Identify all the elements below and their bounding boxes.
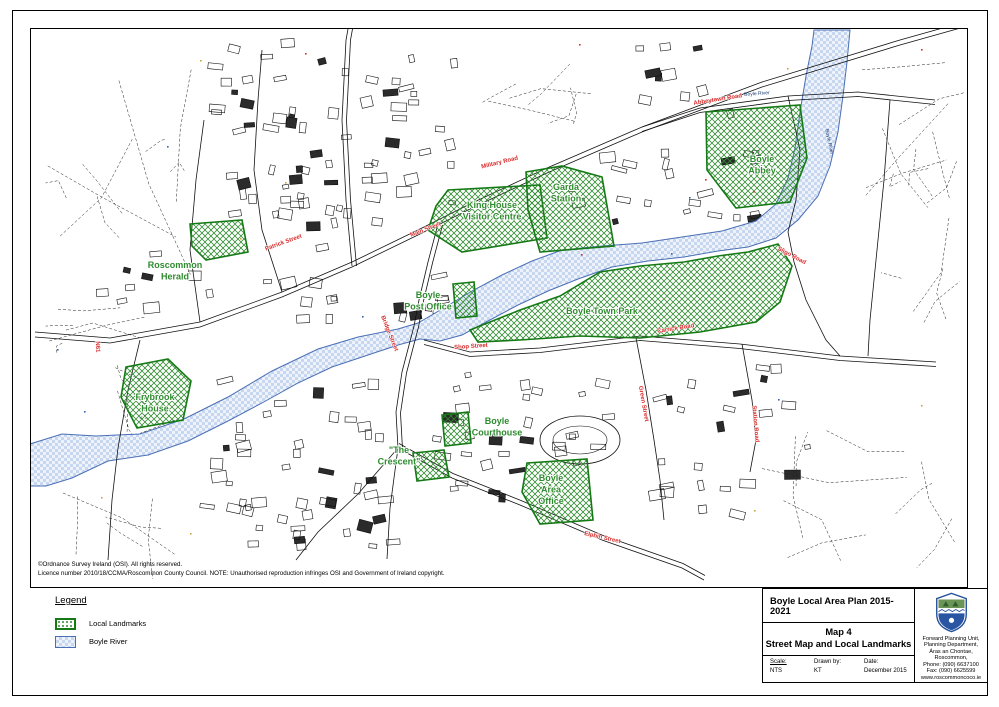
- building-outline: [299, 122, 306, 133]
- date-label: Date:: [864, 659, 912, 665]
- field-boundary-line: [63, 493, 175, 554]
- building-outline: [123, 267, 131, 273]
- building-outline: [233, 127, 246, 135]
- drawn-by-value: KT: [814, 668, 864, 674]
- building-outline: [698, 505, 707, 514]
- landmark-name-label: Herald: [161, 272, 189, 282]
- legend-item-label: Boyle River: [89, 637, 127, 646]
- building-outline: [411, 91, 417, 96]
- date-value: December 2015: [864, 668, 912, 674]
- building-outline: [760, 375, 767, 382]
- building-outline: [263, 124, 279, 133]
- building-outline: [419, 148, 431, 156]
- building-outline: [237, 177, 251, 190]
- building-outline: [306, 222, 320, 231]
- building-outline: [310, 150, 322, 158]
- survey-mark: [305, 53, 307, 55]
- landmark-name-label: Area: [541, 485, 562, 495]
- landmark-name-label: Boyle: [750, 154, 775, 164]
- map-number: Map 4: [825, 627, 851, 639]
- building-outline: [296, 166, 303, 173]
- building-outline: [756, 365, 770, 372]
- street-name-label: Military Road: [481, 155, 519, 170]
- building-outline: [117, 298, 127, 305]
- road-line: [347, 29, 357, 266]
- building-outline: [232, 90, 238, 95]
- building-outline: [636, 46, 644, 51]
- building-outline: [366, 75, 379, 84]
- survey-mark: [787, 68, 789, 70]
- building-outline: [733, 389, 749, 396]
- field-boundary-line: [488, 101, 574, 121]
- building-outline: [383, 89, 398, 97]
- building-outline: [373, 514, 387, 524]
- landmark-name-label: Visitor Centre: [463, 212, 522, 222]
- landmark-name-label: House: [141, 404, 169, 414]
- building-outline: [289, 174, 302, 184]
- building-outline: [325, 205, 335, 216]
- building-outline: [286, 117, 297, 129]
- local-landmark-area: [190, 220, 248, 260]
- building-outline: [282, 464, 290, 470]
- survey-mark: [671, 253, 673, 255]
- building-outline: [329, 411, 339, 422]
- map-meta-row: Scale: NTS Drawn by: KT Date: December 2…: [763, 656, 914, 682]
- field-boundary-line: [107, 523, 143, 547]
- building-outline: [638, 95, 651, 106]
- building-outline: [499, 451, 509, 456]
- building-outline: [239, 188, 246, 199]
- landmark-name-label: Station: [551, 194, 582, 204]
- building-outline: [579, 391, 586, 396]
- building-outline: [210, 458, 223, 469]
- building-outline: [125, 284, 135, 291]
- building-outline: [644, 200, 651, 207]
- building-outline: [217, 376, 233, 385]
- building-outline: [453, 386, 460, 392]
- building-outline: [209, 104, 225, 113]
- field-boundary-line: [924, 282, 960, 323]
- building-outline: [188, 271, 201, 281]
- landmark-name-label: Garda: [553, 182, 580, 192]
- building-outline: [277, 515, 288, 524]
- building-outline: [206, 289, 214, 298]
- field-boundary-line: [914, 148, 933, 197]
- building-outline: [531, 387, 543, 396]
- building-outline: [479, 385, 491, 391]
- building-outline: [360, 96, 373, 109]
- landmark-name-label: Boyle: [539, 473, 564, 483]
- building-outline: [435, 126, 444, 132]
- building-outline: [358, 421, 372, 432]
- building-outline: [659, 459, 665, 465]
- field-boundary-line: [170, 162, 184, 172]
- field-boundary-line: [146, 140, 165, 152]
- building-outline: [364, 490, 378, 500]
- building-outline: [740, 479, 756, 488]
- building-outline: [228, 210, 241, 218]
- building-outline: [228, 44, 241, 54]
- landmark-name-label: Boyle Town Park: [566, 306, 639, 316]
- landmark-name-label: "The: [389, 445, 409, 455]
- landmark-name-label: Crescent": [378, 457, 421, 467]
- scale-cell: Scale: NTS: [770, 659, 814, 682]
- building-outline: [450, 58, 457, 68]
- crescent-oval-road: [553, 426, 607, 454]
- building-outline: [697, 85, 709, 97]
- building-outline: [240, 98, 254, 109]
- field-boundary-line: [898, 93, 964, 126]
- landmark-name-label: Abbey: [748, 166, 776, 176]
- building-outline: [278, 208, 293, 221]
- river-name-label: Boyle River: [744, 90, 770, 98]
- building-outline: [235, 434, 245, 440]
- building-outline: [782, 401, 796, 410]
- road-line: [342, 29, 352, 266]
- building-outline: [693, 45, 702, 51]
- field-boundary-line: [793, 436, 803, 538]
- building-outline: [683, 209, 690, 215]
- survey-mark: [362, 316, 364, 318]
- field-boundary-line: [925, 161, 956, 204]
- building-outline: [342, 69, 348, 76]
- survey-mark: [579, 44, 581, 46]
- building-outline: [432, 436, 441, 443]
- landmark-name-label: Boyle: [416, 290, 441, 300]
- building-outline: [369, 544, 377, 549]
- building-outline: [326, 314, 332, 323]
- survey-mark: [921, 49, 923, 51]
- building-outline: [365, 192, 381, 203]
- building-outline: [331, 296, 337, 301]
- building-outline: [261, 54, 273, 59]
- building-outline: [680, 92, 690, 102]
- survey-mark: [101, 497, 103, 499]
- building-outline: [280, 276, 297, 290]
- field-boundary-line: [483, 83, 517, 102]
- building-outline: [399, 84, 415, 92]
- field-boundary-line: [909, 169, 928, 186]
- building-outline: [391, 103, 407, 112]
- survey-mark: [754, 510, 756, 512]
- drawn-by-cell: Drawn by: KT: [814, 659, 864, 682]
- building-outline: [354, 483, 362, 494]
- building-outline: [248, 541, 259, 547]
- scale-label: Scale:: [770, 659, 814, 665]
- field-boundary-line: [913, 216, 949, 311]
- survey-mark: [581, 254, 583, 256]
- building-outline: [236, 440, 252, 453]
- osi-licence-line: Licence number 2010/18/CCMA/Roscommon Co…: [38, 570, 445, 577]
- building-outline: [281, 38, 295, 47]
- building-outline: [263, 279, 271, 284]
- building-outline: [150, 251, 162, 257]
- building-outline: [281, 196, 291, 203]
- survey-mark: [921, 405, 923, 407]
- building-outline: [273, 113, 287, 124]
- field-boundary-line: [784, 501, 841, 561]
- roscommon-county-council-crest-icon: [935, 592, 968, 633]
- field-boundary-line: [60, 139, 132, 236]
- field-boundary-line: [528, 64, 570, 105]
- building-outline: [805, 444, 811, 449]
- field-boundary-line: [862, 63, 946, 70]
- building-outline: [345, 417, 356, 423]
- building-outline: [316, 243, 329, 252]
- building-outline: [404, 152, 411, 159]
- landmark-name-label: Office: [538, 496, 564, 506]
- building-outline: [622, 160, 637, 169]
- building-outline: [392, 78, 400, 85]
- building-outline: [242, 75, 253, 84]
- building-outline: [371, 160, 378, 167]
- field-boundary-line: [58, 308, 120, 311]
- building-outline: [602, 414, 615, 421]
- field-boundary-line: [49, 317, 144, 341]
- local-landmark-area: [442, 412, 471, 446]
- building-outline: [296, 498, 308, 510]
- survey-mark: [190, 533, 192, 535]
- building-outline: [211, 470, 228, 483]
- building-outline: [599, 151, 616, 163]
- landmark-name-label: Post Office: [404, 302, 452, 312]
- boyle-river-swatch-icon: [55, 636, 76, 648]
- building-outline: [708, 212, 722, 219]
- survey-mark: [705, 179, 707, 181]
- street-name-label: Elphin Street: [584, 531, 621, 545]
- field-boundary-line: [917, 519, 952, 568]
- building-outline: [326, 160, 333, 168]
- legend-item-local-landmarks: Local Landmarks: [55, 617, 146, 630]
- street-name-label: N61: [94, 341, 101, 353]
- building-outline: [141, 273, 153, 281]
- survey-mark: [240, 238, 242, 240]
- building-outline: [523, 394, 530, 400]
- field-boundary-line: [890, 174, 901, 187]
- survey-mark: [689, 197, 691, 199]
- survey-mark: [57, 349, 59, 351]
- field-boundary-line: [46, 181, 67, 198]
- building-outline: [729, 509, 746, 520]
- building-outline: [324, 180, 337, 185]
- building-outline: [509, 467, 525, 474]
- local-landmarks-swatch-icon: [55, 618, 76, 630]
- map-sheet: Military RoadAbbeytown RoadPatrick Stree…: [0, 0, 999, 707]
- map-title: Street Map and Local Landmarks: [766, 639, 912, 651]
- building-outline: [318, 468, 334, 476]
- field-boundary-line: [571, 88, 577, 124]
- department-line: Fax: (090) 6625599: [921, 668, 981, 674]
- building-outline: [393, 115, 407, 121]
- building-outline: [612, 218, 618, 224]
- building-outline: [720, 486, 731, 491]
- building-outline: [263, 411, 272, 418]
- survey-mark: [778, 399, 780, 401]
- field-boundary-line: [866, 104, 948, 196]
- building-outline: [520, 379, 530, 390]
- street-map-canvas: Military RoadAbbeytown RoadPatrick Stree…: [31, 29, 967, 585]
- building-outline: [785, 470, 801, 479]
- building-outline: [236, 422, 243, 433]
- drawn-by-label: Drawn by:: [814, 659, 864, 665]
- building-outline: [318, 57, 327, 65]
- building-outline: [653, 394, 667, 402]
- building-outline: [409, 100, 419, 105]
- map-title-cell: Map 4 Street Map and Local Landmarks: [763, 623, 914, 656]
- title-block-text-panel: Boyle Local Area Plan 2015-2021 Map 4 St…: [763, 589, 915, 682]
- building-outline: [226, 481, 232, 486]
- building-outline: [759, 409, 772, 417]
- field-boundary-line: [827, 431, 905, 452]
- department-website: www.roscommoncoco.ie: [921, 675, 981, 681]
- building-outline: [524, 417, 533, 428]
- building-outline: [268, 165, 275, 175]
- plan-title: Boyle Local Area Plan 2015-2021: [763, 589, 914, 623]
- building-outline: [396, 186, 411, 197]
- building-outline: [328, 107, 339, 119]
- building-outline: [96, 289, 108, 297]
- building-outline: [300, 297, 312, 308]
- crescent-oval-road: [540, 416, 620, 464]
- building-outline: [661, 68, 677, 81]
- building-outline: [661, 149, 669, 157]
- road-line: [636, 338, 664, 520]
- building-outline: [249, 194, 257, 204]
- road-line: [190, 120, 204, 322]
- title-block-logo-panel: Forward Planning Unit, Planning Departme…: [915, 589, 987, 682]
- building-outline: [208, 63, 223, 70]
- legend-item-boyle-river: Boyle River: [55, 635, 146, 648]
- building-outline: [662, 158, 669, 170]
- building-outline: [465, 372, 472, 378]
- building-outline: [660, 43, 671, 51]
- building-outline: [291, 201, 304, 208]
- field-boundary-line: [788, 535, 866, 558]
- building-outline: [143, 302, 160, 314]
- building-outline: [274, 75, 287, 82]
- field-boundary-line: [46, 325, 73, 326]
- osi-copyright-line: ©Ordnance Survey Ireland (OSI). All righ…: [38, 561, 182, 568]
- building-outline: [717, 421, 725, 432]
- survey-mark: [200, 60, 202, 62]
- building-outline: [274, 400, 286, 406]
- building-outline: [677, 406, 685, 413]
- field-boundary-line: [106, 517, 161, 528]
- building-outline: [697, 480, 704, 491]
- building-outline: [362, 177, 372, 183]
- building-outline: [566, 431, 579, 439]
- field-boundary-line: [932, 130, 949, 198]
- street-name-label: Green Street: [637, 386, 649, 423]
- building-outline: [375, 434, 383, 442]
- department-line: Planning Department,: [921, 642, 981, 648]
- building-outline: [385, 138, 400, 148]
- building-outline: [734, 215, 740, 221]
- building-outline: [297, 315, 310, 324]
- building-outline: [294, 439, 304, 449]
- building-outline: [481, 459, 493, 471]
- field-boundary-line: [921, 461, 954, 542]
- local-landmark-area: [453, 282, 477, 318]
- local-landmark-area: [526, 166, 614, 252]
- survey-mark: [753, 191, 755, 193]
- building-outline: [294, 449, 301, 457]
- field-boundary-line: [510, 89, 591, 99]
- building-outline: [357, 519, 373, 533]
- building-outline: [648, 489, 665, 502]
- building-outline: [313, 388, 324, 399]
- building-outline: [343, 529, 350, 537]
- building-outline: [200, 503, 215, 509]
- building-outline: [408, 54, 414, 62]
- building-outline: [226, 172, 237, 179]
- field-boundary-line: [83, 164, 123, 213]
- landmark-name-label: Courthouse: [472, 428, 523, 438]
- building-outline: [302, 510, 313, 521]
- field-boundary-line: [76, 495, 78, 554]
- building-outline: [368, 379, 379, 390]
- date-cell: Date: December 2015: [864, 659, 912, 682]
- field-boundary-line: [866, 160, 947, 188]
- building-outline: [372, 217, 383, 226]
- street-name-label: Patrick Street: [264, 234, 302, 253]
- survey-mark: [745, 320, 747, 322]
- building-outline: [666, 396, 672, 405]
- field-boundary-line: [119, 81, 191, 275]
- building-outline: [252, 497, 267, 508]
- building-outline: [331, 218, 338, 228]
- field-boundary-line: [97, 196, 119, 238]
- title-block: Boyle Local Area Plan 2015-2021 Map 4 St…: [762, 588, 988, 683]
- survey-mark: [84, 411, 86, 413]
- legend-title: Legend: [55, 595, 146, 606]
- building-outline: [404, 173, 419, 186]
- building-outline: [431, 272, 447, 280]
- building-outline: [448, 162, 454, 169]
- building-outline: [461, 452, 472, 457]
- building-outline: [771, 364, 782, 373]
- landmark-name-label: Roscommon: [148, 260, 203, 270]
- street-name-label: Station Road: [750, 405, 759, 443]
- building-outline: [687, 379, 695, 389]
- building-outline: [223, 445, 229, 451]
- legend-item-label: Local Landmarks: [89, 619, 146, 628]
- scale-value: NTS: [770, 668, 814, 674]
- building-outline: [245, 504, 251, 510]
- building-outline: [336, 205, 343, 212]
- building-outline: [697, 189, 713, 199]
- building-outline: [445, 138, 456, 151]
- building-outline: [371, 173, 387, 184]
- building-outline: [221, 78, 231, 86]
- survey-mark: [167, 146, 169, 148]
- legend: Legend Local Landmarks Boyle River: [55, 595, 146, 653]
- map-frame: Military RoadAbbeytown RoadPatrick Stree…: [30, 28, 968, 588]
- building-outline: [256, 525, 263, 531]
- building-outline: [617, 196, 631, 204]
- building-outline: [352, 382, 365, 388]
- building-outline: [694, 463, 702, 471]
- building-outline: [595, 378, 610, 389]
- department-address: Forward Planning Unit, Planning Departme…: [921, 636, 981, 681]
- building-outline: [244, 122, 255, 127]
- field-boundary-line: [762, 469, 907, 483]
- field-boundary-line: [895, 483, 932, 514]
- building-outline: [723, 405, 735, 412]
- building-outline: [282, 184, 289, 189]
- building-outline: [450, 486, 458, 491]
- landmark-name-label: Boyle: [485, 416, 510, 426]
